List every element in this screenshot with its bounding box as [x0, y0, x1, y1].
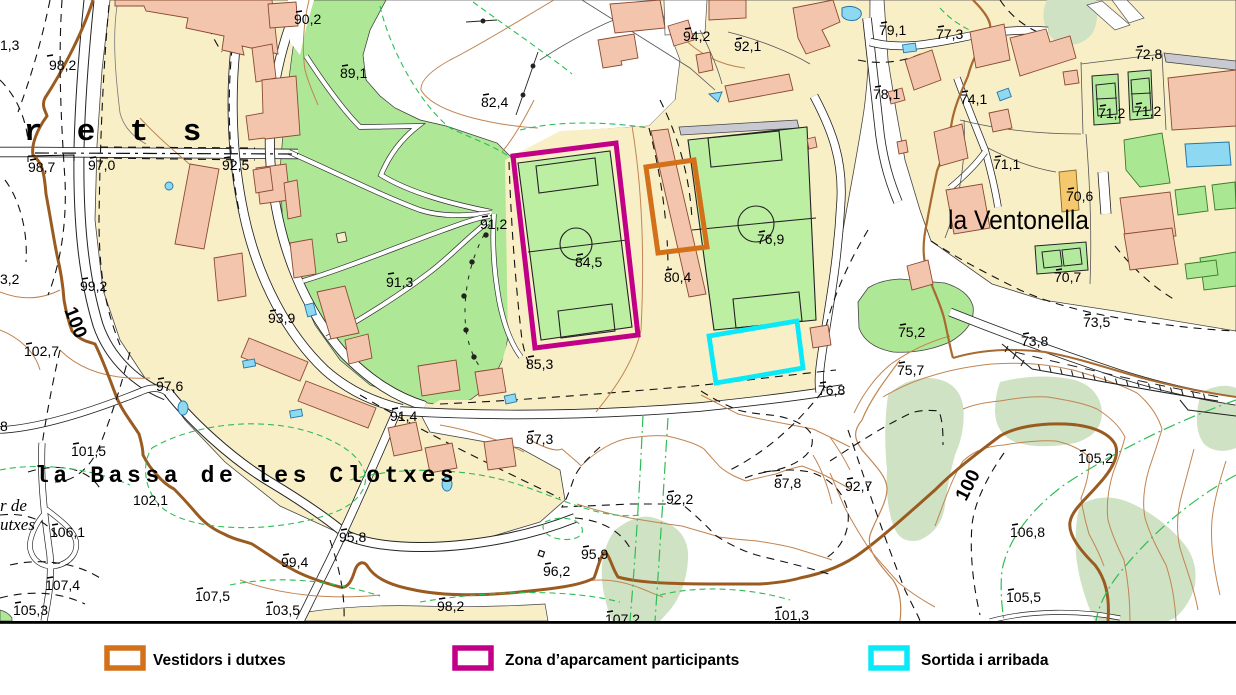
svg-text:91,4: 91,4	[390, 408, 417, 424]
svg-text:Zona d’aparcament participants: Zona d’aparcament participants	[505, 652, 739, 669]
svg-text:76,8: 76,8	[818, 382, 845, 398]
svg-text:77,3: 77,3	[936, 26, 963, 42]
svg-text:90,2: 90,2	[294, 11, 321, 27]
svg-text:102,7: 102,7	[24, 343, 59, 359]
svg-text:92,7: 92,7	[845, 478, 872, 494]
svg-text:t: t	[130, 115, 149, 150]
svg-text:73,8: 73,8	[1021, 333, 1048, 349]
svg-text:105,2: 105,2	[1078, 450, 1113, 466]
svg-text:Vestidors i dutxes: Vestidors i dutxes	[153, 652, 286, 669]
svg-text:78,1: 78,1	[873, 86, 900, 102]
svg-text:99,4: 99,4	[281, 554, 308, 570]
svg-text:73,5: 73,5	[1083, 314, 1110, 330]
svg-text:70,7: 70,7	[1054, 269, 1081, 285]
svg-text:82,4: 82,4	[481, 94, 508, 110]
svg-text:75,7: 75,7	[897, 362, 924, 378]
svg-text:97,6: 97,6	[156, 378, 183, 394]
svg-text:87,3: 87,3	[526, 431, 553, 447]
svg-text:92,2: 92,2	[666, 491, 693, 507]
svg-text:79,1: 79,1	[879, 22, 906, 38]
svg-text:71,1: 71,1	[993, 156, 1020, 172]
svg-text:101,5: 101,5	[71, 443, 106, 459]
svg-text:85,3: 85,3	[526, 356, 553, 372]
svg-text:91,2: 91,2	[480, 216, 507, 232]
svg-text:75,2: 75,2	[898, 324, 925, 340]
svg-text:84,5: 84,5	[575, 254, 602, 270]
svg-text:Sortida i arribada: Sortida i arribada	[921, 652, 1049, 669]
svg-text:99,2: 99,2	[80, 278, 107, 294]
svg-text:102,1: 102,1	[133, 492, 168, 508]
svg-text:la Ventonella: la Ventonella	[948, 205, 1090, 235]
svg-text:96,2: 96,2	[543, 563, 570, 579]
svg-text:r: r	[24, 115, 43, 150]
svg-text:72,8: 72,8	[1135, 46, 1162, 62]
svg-text:91,3: 91,3	[386, 274, 413, 290]
svg-text:103,5: 103,5	[265, 602, 300, 618]
svg-text:107,5: 107,5	[195, 588, 230, 604]
svg-text:74,1: 74,1	[960, 91, 987, 107]
svg-text:89,1: 89,1	[340, 65, 367, 81]
svg-text:8: 8	[0, 418, 8, 434]
svg-text:94,2: 94,2	[683, 28, 710, 44]
svg-text:106,1: 106,1	[50, 524, 85, 540]
svg-text:1,3: 1,3	[0, 37, 20, 53]
svg-text:105,3: 105,3	[13, 602, 48, 618]
svg-text:98,7: 98,7	[28, 159, 55, 175]
svg-text:e: e	[77, 115, 96, 150]
svg-text:95,9: 95,9	[581, 546, 608, 562]
svg-text:76,9: 76,9	[757, 231, 784, 247]
svg-text:97,0: 97,0	[88, 157, 115, 173]
svg-text:80,4: 80,4	[664, 269, 691, 285]
svg-text:3,2: 3,2	[0, 271, 20, 287]
svg-text:la Bassa de les Clotxes: la Bassa de les Clotxes	[35, 463, 458, 489]
svg-text:r de: r de	[0, 496, 27, 515]
svg-text:93,9: 93,9	[268, 310, 295, 326]
svg-text:107,4: 107,4	[45, 577, 80, 593]
svg-text:87,8: 87,8	[774, 475, 801, 491]
svg-text:71,2: 71,2	[1098, 105, 1125, 121]
svg-text:utxes: utxes	[0, 515, 35, 534]
svg-text:92,1: 92,1	[734, 38, 761, 54]
svg-text:98,2: 98,2	[437, 598, 464, 614]
svg-text:95,8: 95,8	[339, 529, 366, 545]
svg-text:98,2: 98,2	[49, 57, 76, 73]
svg-text:71,2: 71,2	[1134, 103, 1161, 119]
svg-text:70,6: 70,6	[1066, 188, 1093, 204]
svg-text:106,8: 106,8	[1010, 524, 1045, 540]
svg-text:105,5: 105,5	[1006, 589, 1041, 605]
svg-text:s: s	[183, 115, 202, 150]
svg-text:92,5: 92,5	[222, 157, 249, 173]
svg-text:101,3: 101,3	[774, 607, 809, 623]
